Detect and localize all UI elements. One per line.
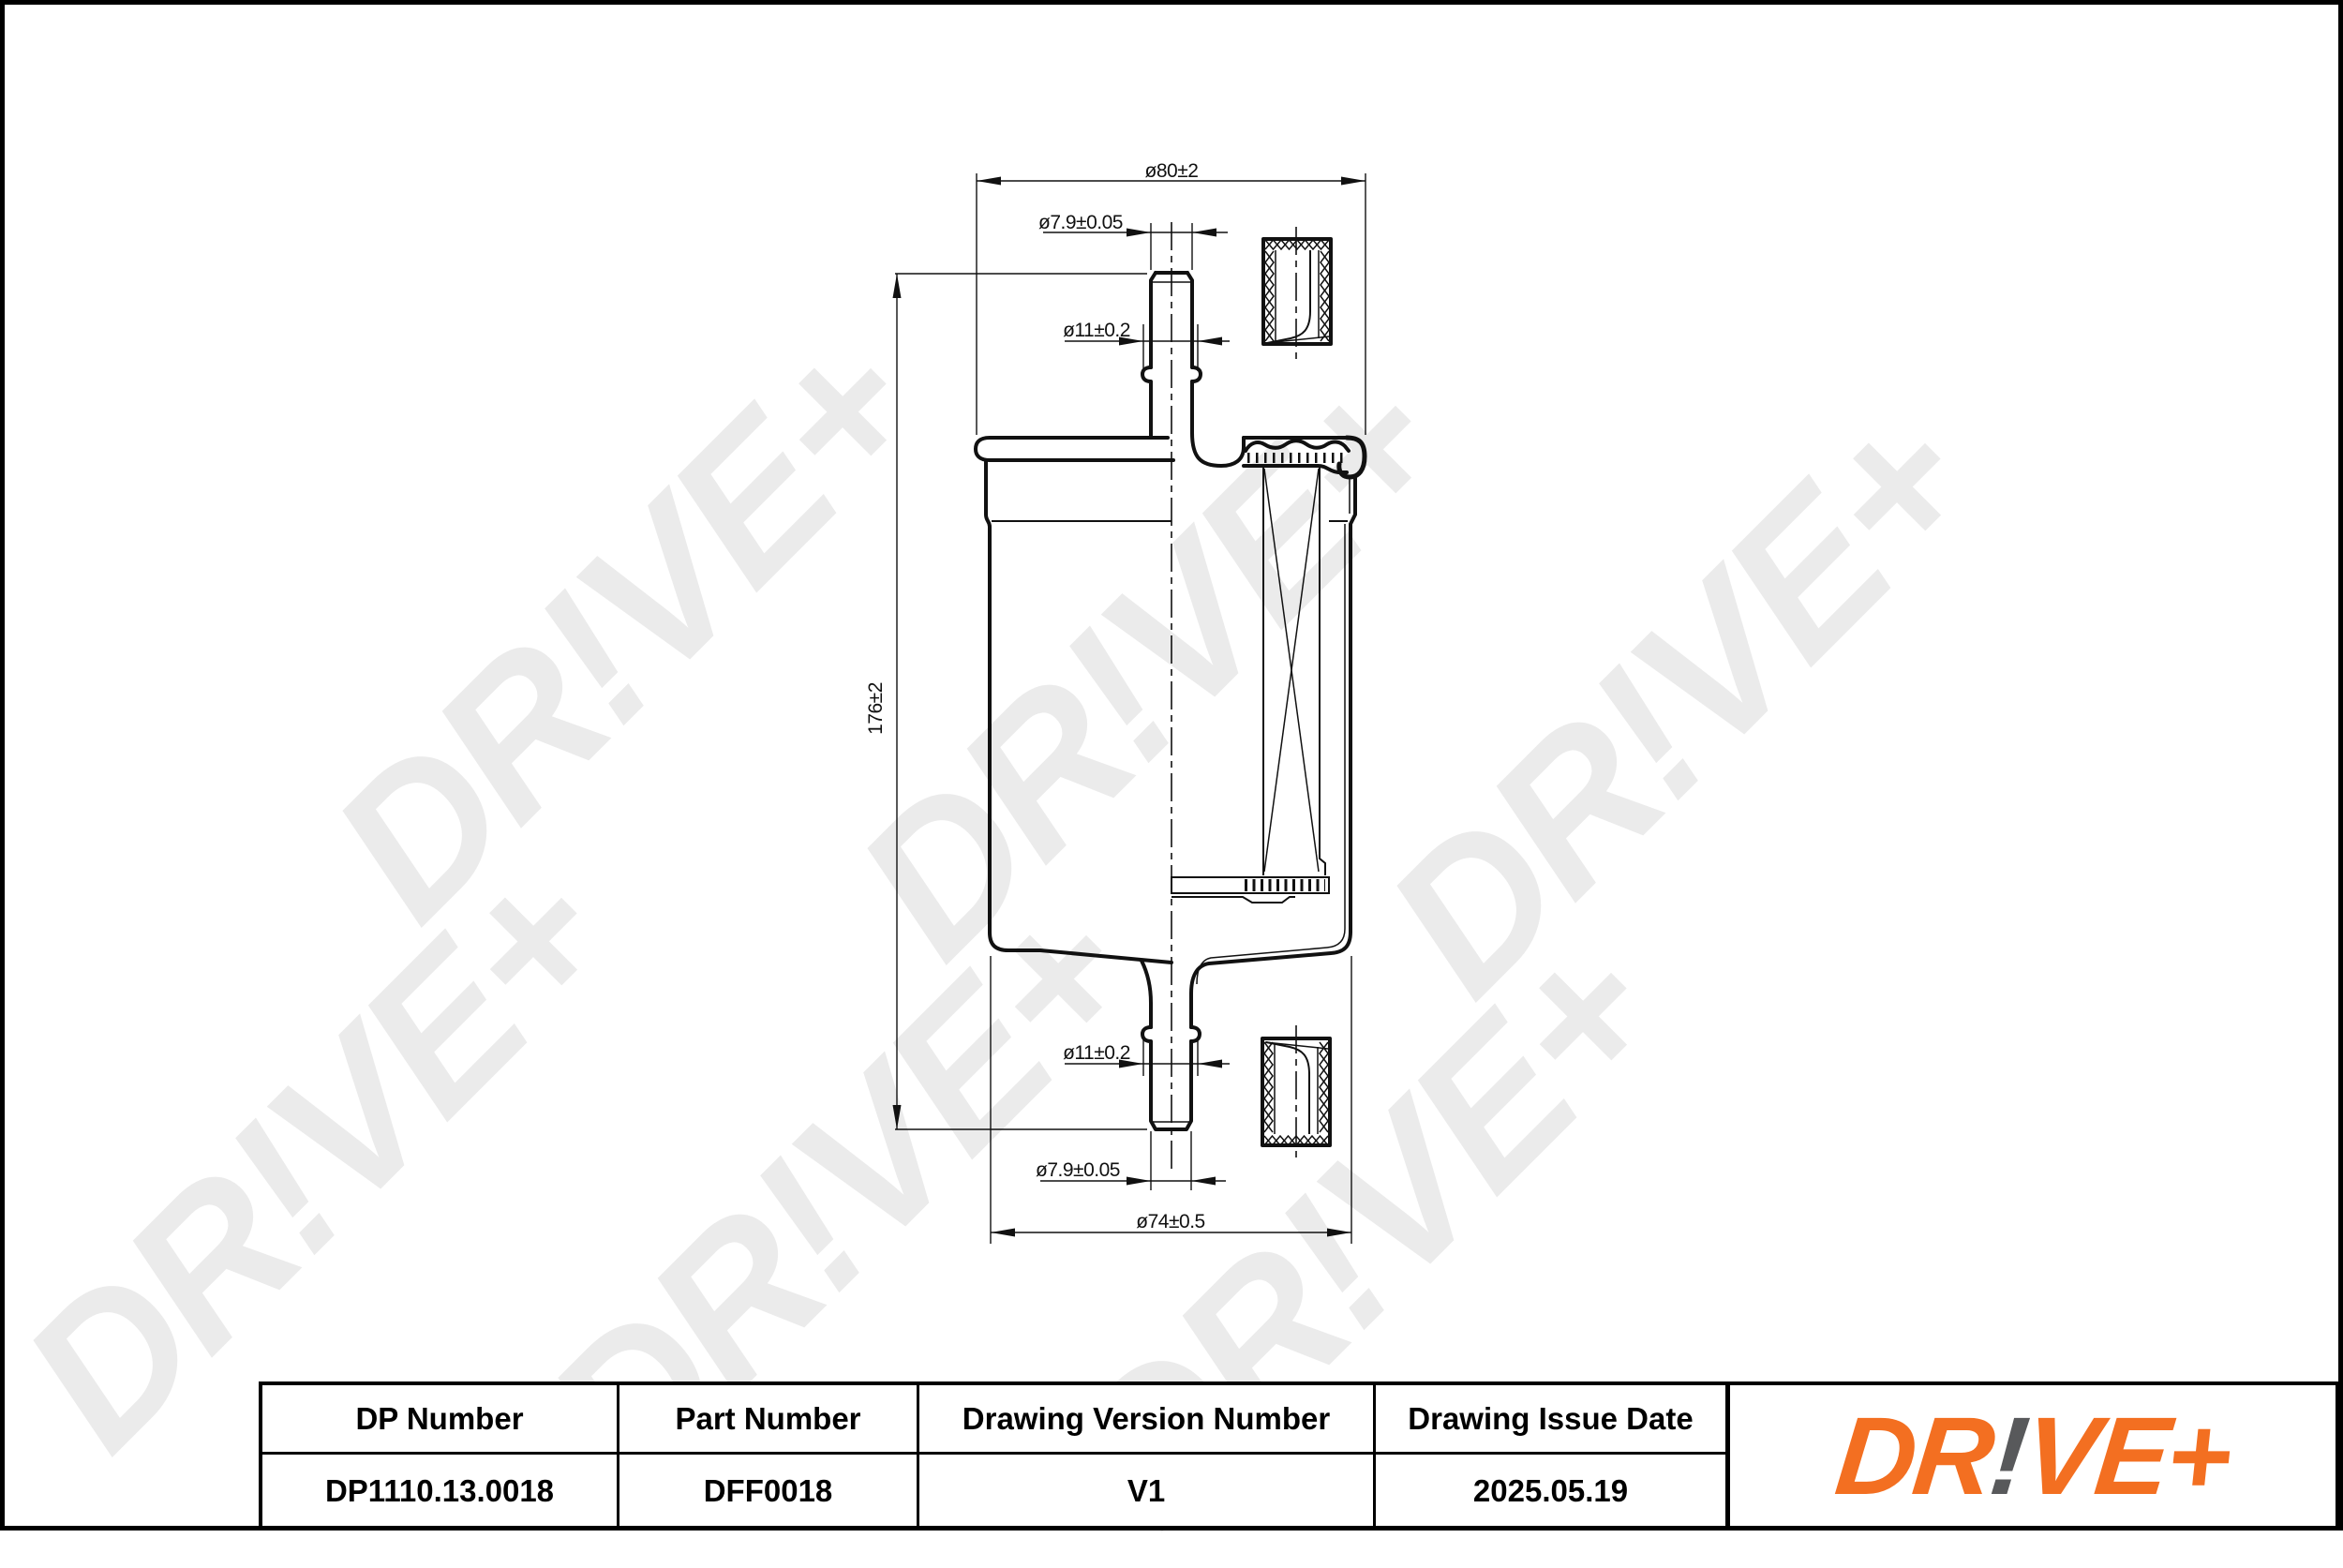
connector-detail-top — [1263, 239, 1331, 344]
filter-body-outline — [976, 273, 1365, 1129]
dimension-top-port-diameter: ø7.9±0.05 — [1038, 212, 1228, 270]
logo-part-ve-plus: VE+ — [2019, 1395, 2235, 1518]
dim-label-top-flange: ø80±2 — [1145, 160, 1199, 182]
header-drawing-issue-date: Drawing Issue Date — [1376, 1385, 1725, 1455]
dim-label-bottom-port: ø7.9±0.05 — [1036, 1159, 1120, 1181]
dimension-top-bead-diameter: ø11±0.2 — [1063, 320, 1230, 371]
header-dp-number: DP Number — [262, 1385, 619, 1455]
value-dp-number: DP1110.13.0018 — [262, 1455, 619, 1527]
fuel-filter-technical-drawing: ø80±2 ø7.9±0.05 ø11±0.2 176±2 ø11±0.2 ø7… — [0, 0, 2343, 1531]
logo-part-dr: DR — [1830, 1395, 1997, 1518]
dim-label-top-port: ø7.9±0.05 — [1038, 212, 1123, 233]
header-part-number: Part Number — [619, 1385, 919, 1455]
dimension-overall-length: 176±2 — [865, 274, 1147, 1129]
dimension-bottom-port-diameter: ø7.9±0.05 — [1036, 1131, 1226, 1190]
filter-element-section — [1171, 467, 1329, 903]
dim-label-overall-length: 176±2 — [865, 682, 887, 735]
dim-label-body-diameter: ø74±0.5 — [1136, 1211, 1204, 1232]
header-drawing-version-number: Drawing Version Number — [919, 1385, 1376, 1455]
title-block-table: DP Number Part Number Drawing Version Nu… — [259, 1381, 1729, 1531]
dim-label-bottom-bead: ø11±0.2 — [1063, 1042, 1130, 1064]
drive-plus-logo: DR!VE+ — [1831, 1401, 2234, 1512]
logo-box: DR!VE+ — [1726, 1381, 2339, 1531]
value-part-number: DFF0018 — [619, 1455, 919, 1527]
dim-label-top-bead: ø11±0.2 — [1063, 320, 1130, 341]
value-drawing-version-number: V1 — [919, 1455, 1376, 1527]
value-drawing-issue-date: 2025.05.19 — [1376, 1455, 1725, 1527]
